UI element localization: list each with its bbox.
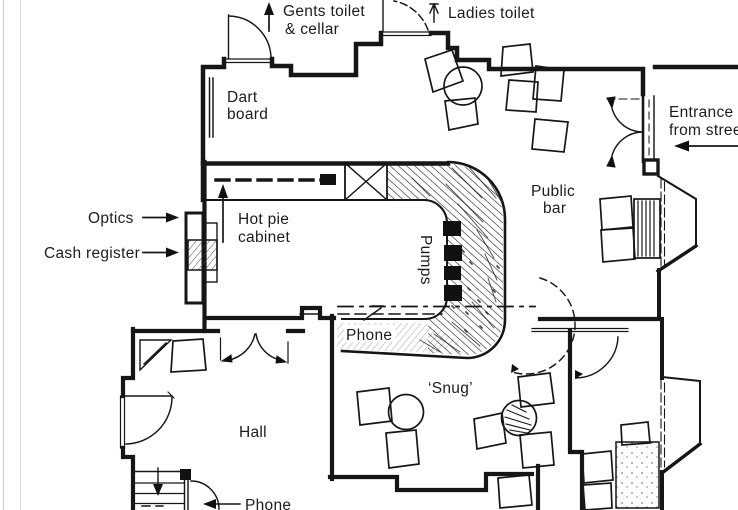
svg-text:Hot pie: Hot pie	[238, 211, 289, 228]
svg-text:Optics: Optics	[88, 210, 134, 227]
svg-text:Dart: Dart	[227, 89, 258, 106]
svg-text:from street: from street	[669, 122, 738, 139]
svg-text:Public: Public	[531, 183, 575, 200]
svg-text:Phone: Phone	[245, 497, 291, 510]
svg-text:Cash register: Cash register	[44, 245, 140, 262]
svg-text:cabinet: cabinet	[238, 229, 290, 246]
svg-text:& cellar: & cellar	[285, 21, 339, 38]
svg-text:Gents toilet: Gents toilet	[283, 3, 365, 20]
svg-text:Pumps: Pumps	[417, 235, 434, 285]
svg-text:‘Snug’: ‘Snug’	[428, 380, 473, 397]
svg-text:Phone: Phone	[346, 327, 392, 344]
svg-text:Entrance: Entrance	[669, 104, 733, 121]
svg-text:bar: bar	[543, 200, 566, 217]
svg-text:board: board	[227, 106, 268, 123]
svg-text:Ladies toilet: Ladies toilet	[448, 5, 535, 22]
svg-text:Hall: Hall	[239, 424, 267, 441]
